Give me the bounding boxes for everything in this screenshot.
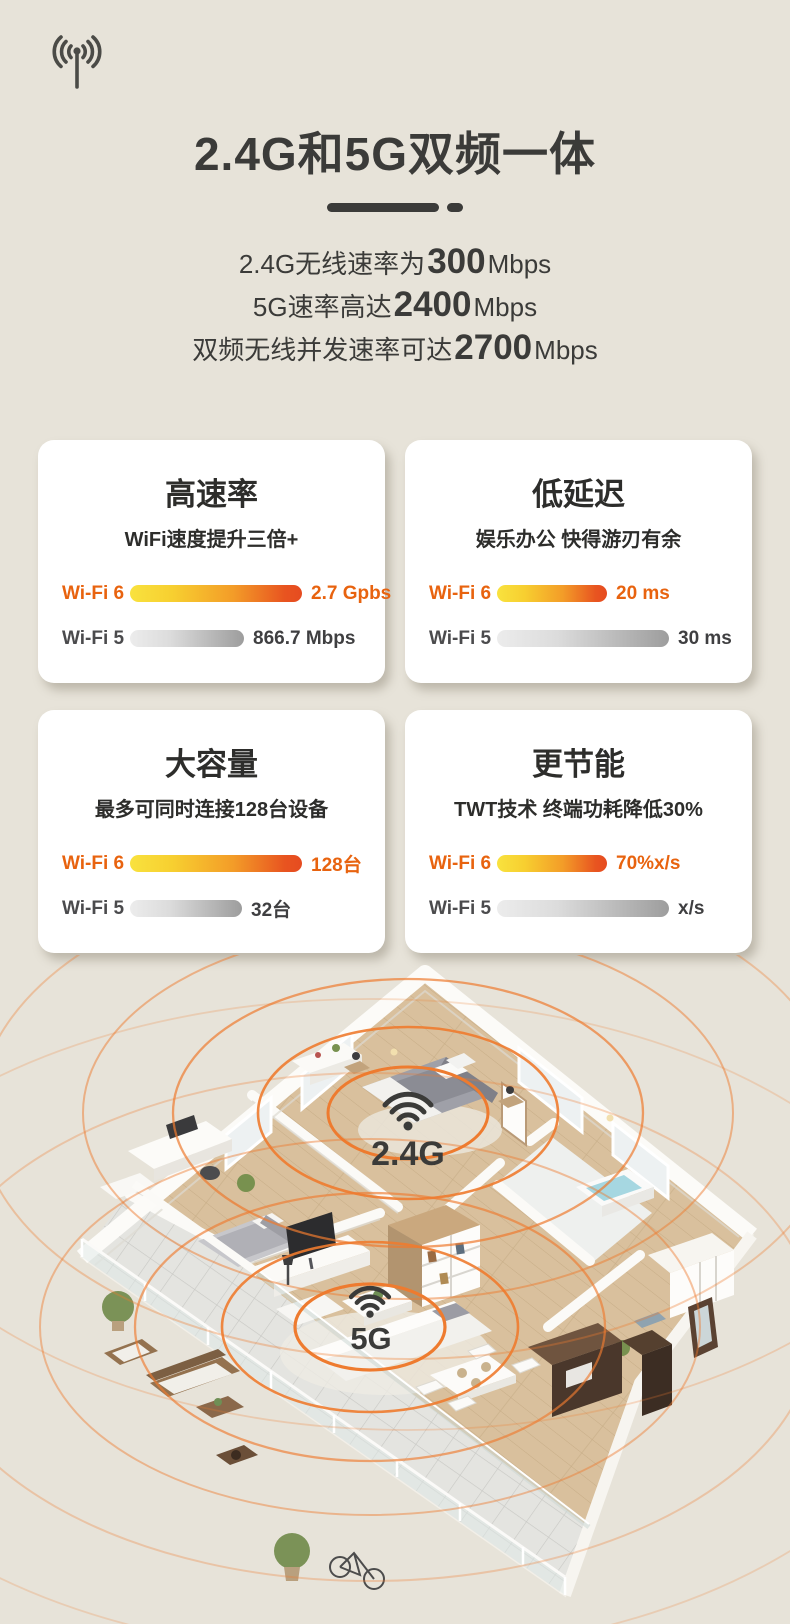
comparison-row-wifi5: Wi-Fi 5 30 ms	[429, 616, 728, 661]
speed-specs: 2.4G无线速率为300Mbps 5G速率高达2400Mbps 双频无线并发速率…	[0, 240, 790, 369]
promo-page: 2.4G和5G双频一体 2.4G无线速率为300Mbps 5G速率高达2400M…	[0, 0, 790, 1624]
wifi5-label: Wi-Fi 5	[429, 898, 497, 920]
comparison-rows: Wi-Fi 6 128台 Wi-Fi 5 32台	[38, 841, 385, 931]
comparison-row-wifi6: Wi-Fi 6 70%x/s	[429, 841, 728, 886]
wifi5-value: 32台	[251, 895, 291, 922]
wifi6-value: 20 ms	[616, 583, 670, 605]
feature-cards: 高速率 WiFi速度提升三倍+ Wi-Fi 6 2.7 Gpbs Wi-Fi 5…	[38, 440, 752, 953]
wifi6-bar	[497, 585, 607, 602]
wifi5-bar	[130, 900, 242, 917]
wifi6-label: Wi-Fi 6	[429, 583, 497, 605]
wifi6-bar	[130, 855, 302, 872]
wifi6-label: Wi-Fi 6	[62, 583, 130, 605]
wifi5-label: Wi-Fi 5	[62, 628, 130, 650]
wifi6-bar	[497, 855, 607, 872]
wifi6-value: 2.7 Gpbs	[311, 583, 391, 605]
wifi5-bar	[497, 900, 669, 917]
divider-short-bar	[447, 203, 463, 212]
comparison-row-wifi6: Wi-Fi 6 20 ms	[429, 571, 728, 616]
comparison-rows: Wi-Fi 6 2.7 Gpbs Wi-Fi 5 866.7 Mbps	[38, 571, 385, 661]
divider-long-bar	[327, 203, 439, 212]
comparison-row-wifi5: Wi-Fi 5 x/s	[429, 886, 728, 931]
wifi6-label: Wi-Fi 6	[62, 853, 130, 875]
floorplan-illustration: 2.4G 5G	[0, 955, 790, 1624]
feature-card-latency: 低延迟 娱乐办公 快得游刃有余 Wi-Fi 6 20 ms Wi-Fi 5 30…	[405, 440, 752, 683]
card-title: 大容量	[38, 739, 385, 784]
card-subtitle: 最多可同时连接128台设备	[38, 793, 385, 822]
band-label-5g: 5G	[350, 1321, 391, 1356]
bicycle	[330, 1553, 384, 1589]
comparison-row-wifi5: Wi-Fi 5 32台	[62, 886, 361, 931]
wifi5-bar	[497, 630, 669, 647]
wall-lamp-icon	[391, 1049, 398, 1056]
wifi5-bar	[130, 630, 244, 647]
wifi5-value: 30 ms	[678, 628, 732, 650]
page-title: 2.4G和5G双频一体	[0, 118, 790, 184]
spec-line-2g4: 2.4G无线速率为300Mbps	[0, 240, 790, 283]
card-title: 高速率	[38, 469, 385, 514]
card-subtitle: WiFi速度提升三倍+	[38, 523, 385, 552]
card-title: 更节能	[405, 739, 752, 784]
wifi5-value: x/s	[678, 898, 704, 920]
card-title: 低延迟	[405, 469, 752, 514]
spec-line-5g: 5G速率高达2400Mbps	[0, 283, 790, 326]
band-label-2g4: 2.4G	[371, 1135, 445, 1173]
wifi5-label: Wi-Fi 5	[62, 898, 130, 920]
card-subtitle: 娱乐办公 快得游刃有余	[405, 523, 752, 552]
wall-lamp-icon	[607, 1115, 614, 1122]
wifi6-label: Wi-Fi 6	[429, 853, 497, 875]
wifi6-bar	[130, 585, 302, 602]
antenna-icon	[50, 32, 104, 90]
spec-line-dualband: 双频无线并发速率可达2700Mbps	[0, 326, 790, 369]
title-divider	[0, 203, 790, 212]
wifi5-value: 866.7 Mbps	[253, 628, 355, 650]
feature-card-speed: 高速率 WiFi速度提升三倍+ Wi-Fi 6 2.7 Gpbs Wi-Fi 5…	[38, 440, 385, 683]
comparison-row-wifi6: Wi-Fi 6 128台	[62, 841, 361, 886]
comparison-rows: Wi-Fi 6 20 ms Wi-Fi 5 30 ms	[405, 571, 752, 661]
wifi5-label: Wi-Fi 5	[429, 628, 497, 650]
card-subtitle: TWT技术 终端功耗降低30%	[405, 793, 752, 822]
comparison-rows: Wi-Fi 6 70%x/s Wi-Fi 5 x/s	[405, 841, 752, 931]
wifi6-value: 70%x/s	[616, 853, 680, 875]
feature-card-power-saving: 更节能 TWT技术 终端功耗降低30% Wi-Fi 6 70%x/s Wi-Fi…	[405, 710, 752, 953]
feature-card-capacity: 大容量 最多可同时连接128台设备 Wi-Fi 6 128台 Wi-Fi 5 3…	[38, 710, 385, 953]
wifi6-value: 128台	[311, 850, 362, 877]
comparison-row-wifi6: Wi-Fi 6 2.7 Gpbs	[62, 571, 361, 616]
comparison-row-wifi5: Wi-Fi 5 866.7 Mbps	[62, 616, 361, 661]
